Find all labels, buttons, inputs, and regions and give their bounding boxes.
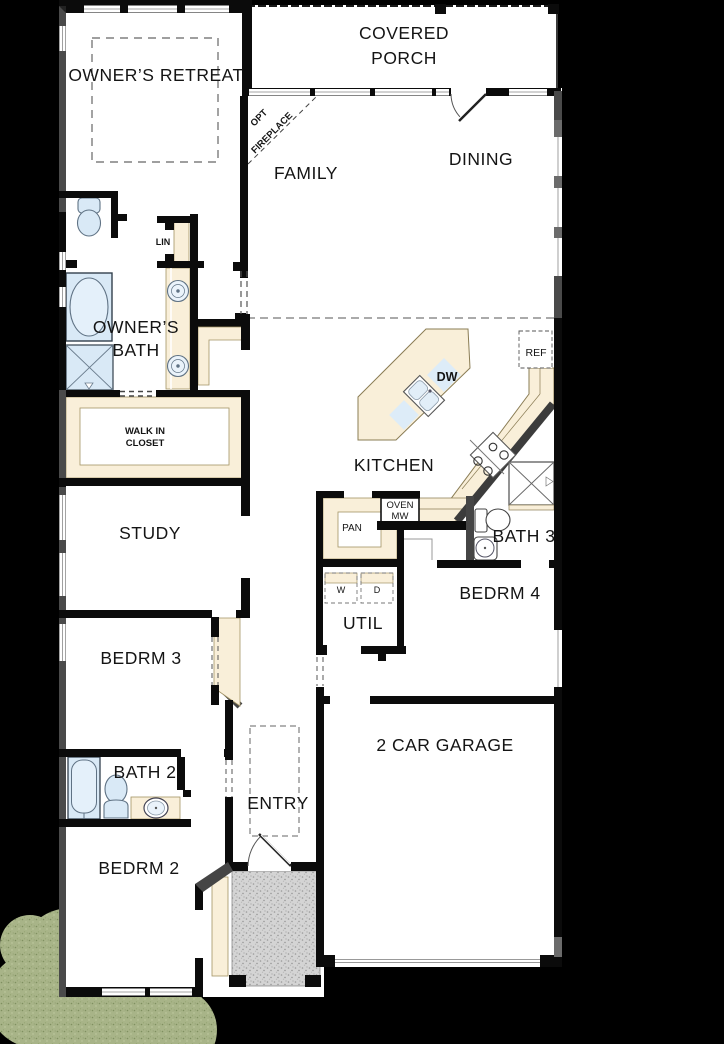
- svg-text:ENTRY: ENTRY: [247, 793, 309, 813]
- svg-text:D: D: [374, 585, 381, 595]
- svg-text:W: W: [337, 585, 346, 595]
- svg-text:COVERED: COVERED: [359, 23, 449, 43]
- svg-text:OWNER’S RETREAT: OWNER’S RETREAT: [68, 65, 243, 85]
- svg-text:DINING: DINING: [449, 149, 513, 169]
- svg-text:PAN: PAN: [342, 523, 362, 534]
- svg-text:BATH 3: BATH 3: [493, 526, 556, 546]
- svg-text:KITCHEN: KITCHEN: [354, 455, 434, 475]
- svg-text:MW: MW: [392, 511, 409, 522]
- svg-text:OWNER’S: OWNER’S: [93, 317, 179, 337]
- svg-text:STUDY: STUDY: [119, 523, 181, 543]
- svg-text:BEDRM 2: BEDRM 2: [98, 858, 179, 878]
- svg-text:LIN: LIN: [156, 237, 171, 247]
- svg-text:BATH 2: BATH 2: [114, 762, 177, 782]
- svg-text:BEDRM 4: BEDRM 4: [459, 583, 540, 603]
- svg-text:BATH: BATH: [112, 340, 159, 360]
- svg-text:WALK IN: WALK IN: [125, 426, 165, 437]
- svg-text:PORCH: PORCH: [371, 48, 437, 68]
- svg-text:OVEN: OVEN: [387, 500, 414, 511]
- svg-text:FAMILY: FAMILY: [274, 163, 338, 183]
- svg-text:BEDRM 3: BEDRM 3: [100, 648, 181, 668]
- svg-text:CLOSET: CLOSET: [126, 438, 165, 449]
- svg-text:REF: REF: [526, 347, 547, 359]
- svg-text:2 CAR GARAGE: 2 CAR GARAGE: [376, 735, 513, 755]
- svg-text:DW: DW: [437, 370, 458, 384]
- svg-text:UTIL: UTIL: [343, 613, 383, 633]
